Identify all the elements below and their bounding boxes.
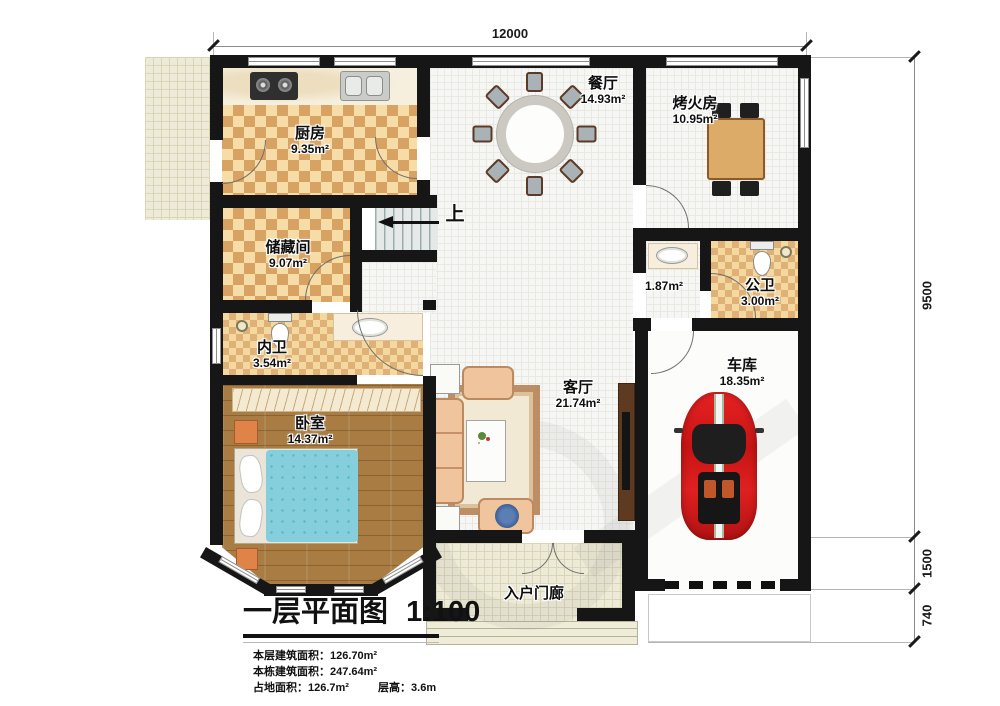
stairs	[375, 208, 437, 250]
window	[248, 57, 320, 66]
title-block: 一层平面图 1:100 本层建筑面积：126.70m² 本栋建筑面积：247.6…	[243, 588, 473, 697]
car-windshield	[692, 424, 746, 464]
room-label-fire-room: 烤火房10.95m²	[650, 96, 740, 126]
wall	[635, 331, 648, 591]
wall	[584, 530, 648, 543]
stove-burner	[278, 78, 292, 92]
wall	[633, 55, 646, 185]
car-mirror	[674, 428, 683, 433]
wall	[780, 579, 811, 591]
dimension-top: 12000	[465, 26, 555, 41]
patio-floor	[145, 57, 210, 220]
dining-table	[497, 96, 573, 172]
window	[212, 328, 221, 364]
window	[666, 57, 778, 66]
room-label-hallway: 1.87m²	[628, 280, 700, 293]
room-label-living: 客厅21.74m²	[536, 380, 620, 410]
wall	[633, 318, 651, 331]
wall	[633, 228, 811, 241]
stairs-up-label: 上	[442, 204, 468, 225]
shower-head	[780, 246, 792, 258]
title-underline-thin	[243, 642, 439, 643]
fire-room-chair	[740, 103, 759, 118]
room-label-bedroom: 卧室14.37m²	[268, 416, 352, 446]
wash-basin	[656, 247, 688, 264]
dining-chair	[577, 126, 597, 143]
wall	[210, 55, 223, 140]
armchair	[462, 366, 514, 400]
stairs-arrow-head	[378, 216, 393, 228]
car-engine-detail	[704, 480, 716, 498]
scale-label: 1:100	[406, 596, 480, 628]
sink-basin	[366, 76, 383, 96]
room-label-kitchen: 厨房9.35m²	[270, 126, 350, 156]
toilet-tank	[750, 241, 774, 250]
room-label-porch: 入户门廊	[478, 586, 590, 603]
wall	[417, 55, 430, 137]
wall	[692, 318, 811, 331]
window	[472, 57, 590, 66]
car-mirror	[755, 428, 764, 433]
wall	[210, 300, 312, 313]
room-label-storage: 储藏间9.07m²	[243, 240, 333, 270]
room-label-dining: 餐厅14.93m²	[558, 76, 648, 106]
dimension-right-apron: 740	[920, 595, 935, 637]
wall	[622, 543, 635, 608]
dimension-right-main: 9500	[920, 271, 935, 321]
fire-room-chair	[712, 181, 731, 196]
floor-plan: 厨房9.35m² 餐厅14.93m² 烤火房10.95m² 储藏间9.07m² …	[0, 0, 1000, 706]
fire-room-chair	[740, 181, 759, 196]
tv	[622, 412, 630, 490]
dimension-right-garage: 1500	[920, 539, 935, 589]
wall	[417, 180, 430, 195]
wall	[355, 250, 437, 262]
extension-line	[811, 537, 914, 538]
wall	[423, 376, 436, 543]
page-title: 一层平面图 1:100	[243, 588, 473, 630]
shower-head	[236, 320, 248, 332]
car-engine-detail	[722, 480, 734, 498]
wall	[700, 241, 711, 291]
extension-line	[648, 642, 914, 643]
nightstand	[234, 420, 258, 444]
stat-building-area: 本栋建筑面积：247.64m²	[253, 665, 473, 681]
room-label-garage: 车库18.35m²	[700, 358, 784, 388]
wall	[798, 331, 811, 591]
wall	[577, 608, 635, 621]
stat-floor-area: 本层建筑面积：126.70m²	[253, 649, 473, 665]
wall	[423, 530, 522, 543]
coffee-table	[466, 420, 506, 482]
garage-door-opening	[665, 581, 780, 589]
stove-burner	[256, 78, 270, 92]
bed-blanket	[266, 450, 358, 542]
toilet-tank	[268, 313, 292, 322]
dining-chair	[473, 126, 493, 143]
wall	[635, 579, 665, 591]
dimension-line-top	[213, 46, 807, 47]
title-underline	[243, 634, 439, 638]
wall	[423, 300, 436, 310]
extension-line	[811, 57, 914, 58]
sink-basin	[345, 76, 362, 96]
fire-room-table	[707, 118, 765, 180]
person-figure	[495, 504, 519, 528]
closet	[232, 388, 421, 412]
dimension-line-right	[914, 57, 915, 642]
wall	[633, 241, 646, 273]
room-label-public-bath: 公卫3.00m²	[718, 278, 802, 308]
extension-line	[811, 589, 914, 590]
wall	[210, 195, 437, 208]
dining-chair	[526, 72, 543, 92]
dining-chair	[526, 176, 543, 196]
stairs-arrow-line	[393, 221, 439, 224]
table-flowers	[478, 432, 486, 440]
garage-apron	[648, 594, 811, 642]
room-label-inner-bath: 内卫3.54m²	[230, 340, 314, 370]
wall	[222, 375, 357, 385]
window	[334, 57, 396, 66]
stat-floor-height: 层高：3.6m	[378, 682, 436, 694]
stat-land-area: 占地面积：126.7m² 层高：3.6m	[253, 681, 473, 697]
window	[800, 78, 809, 148]
